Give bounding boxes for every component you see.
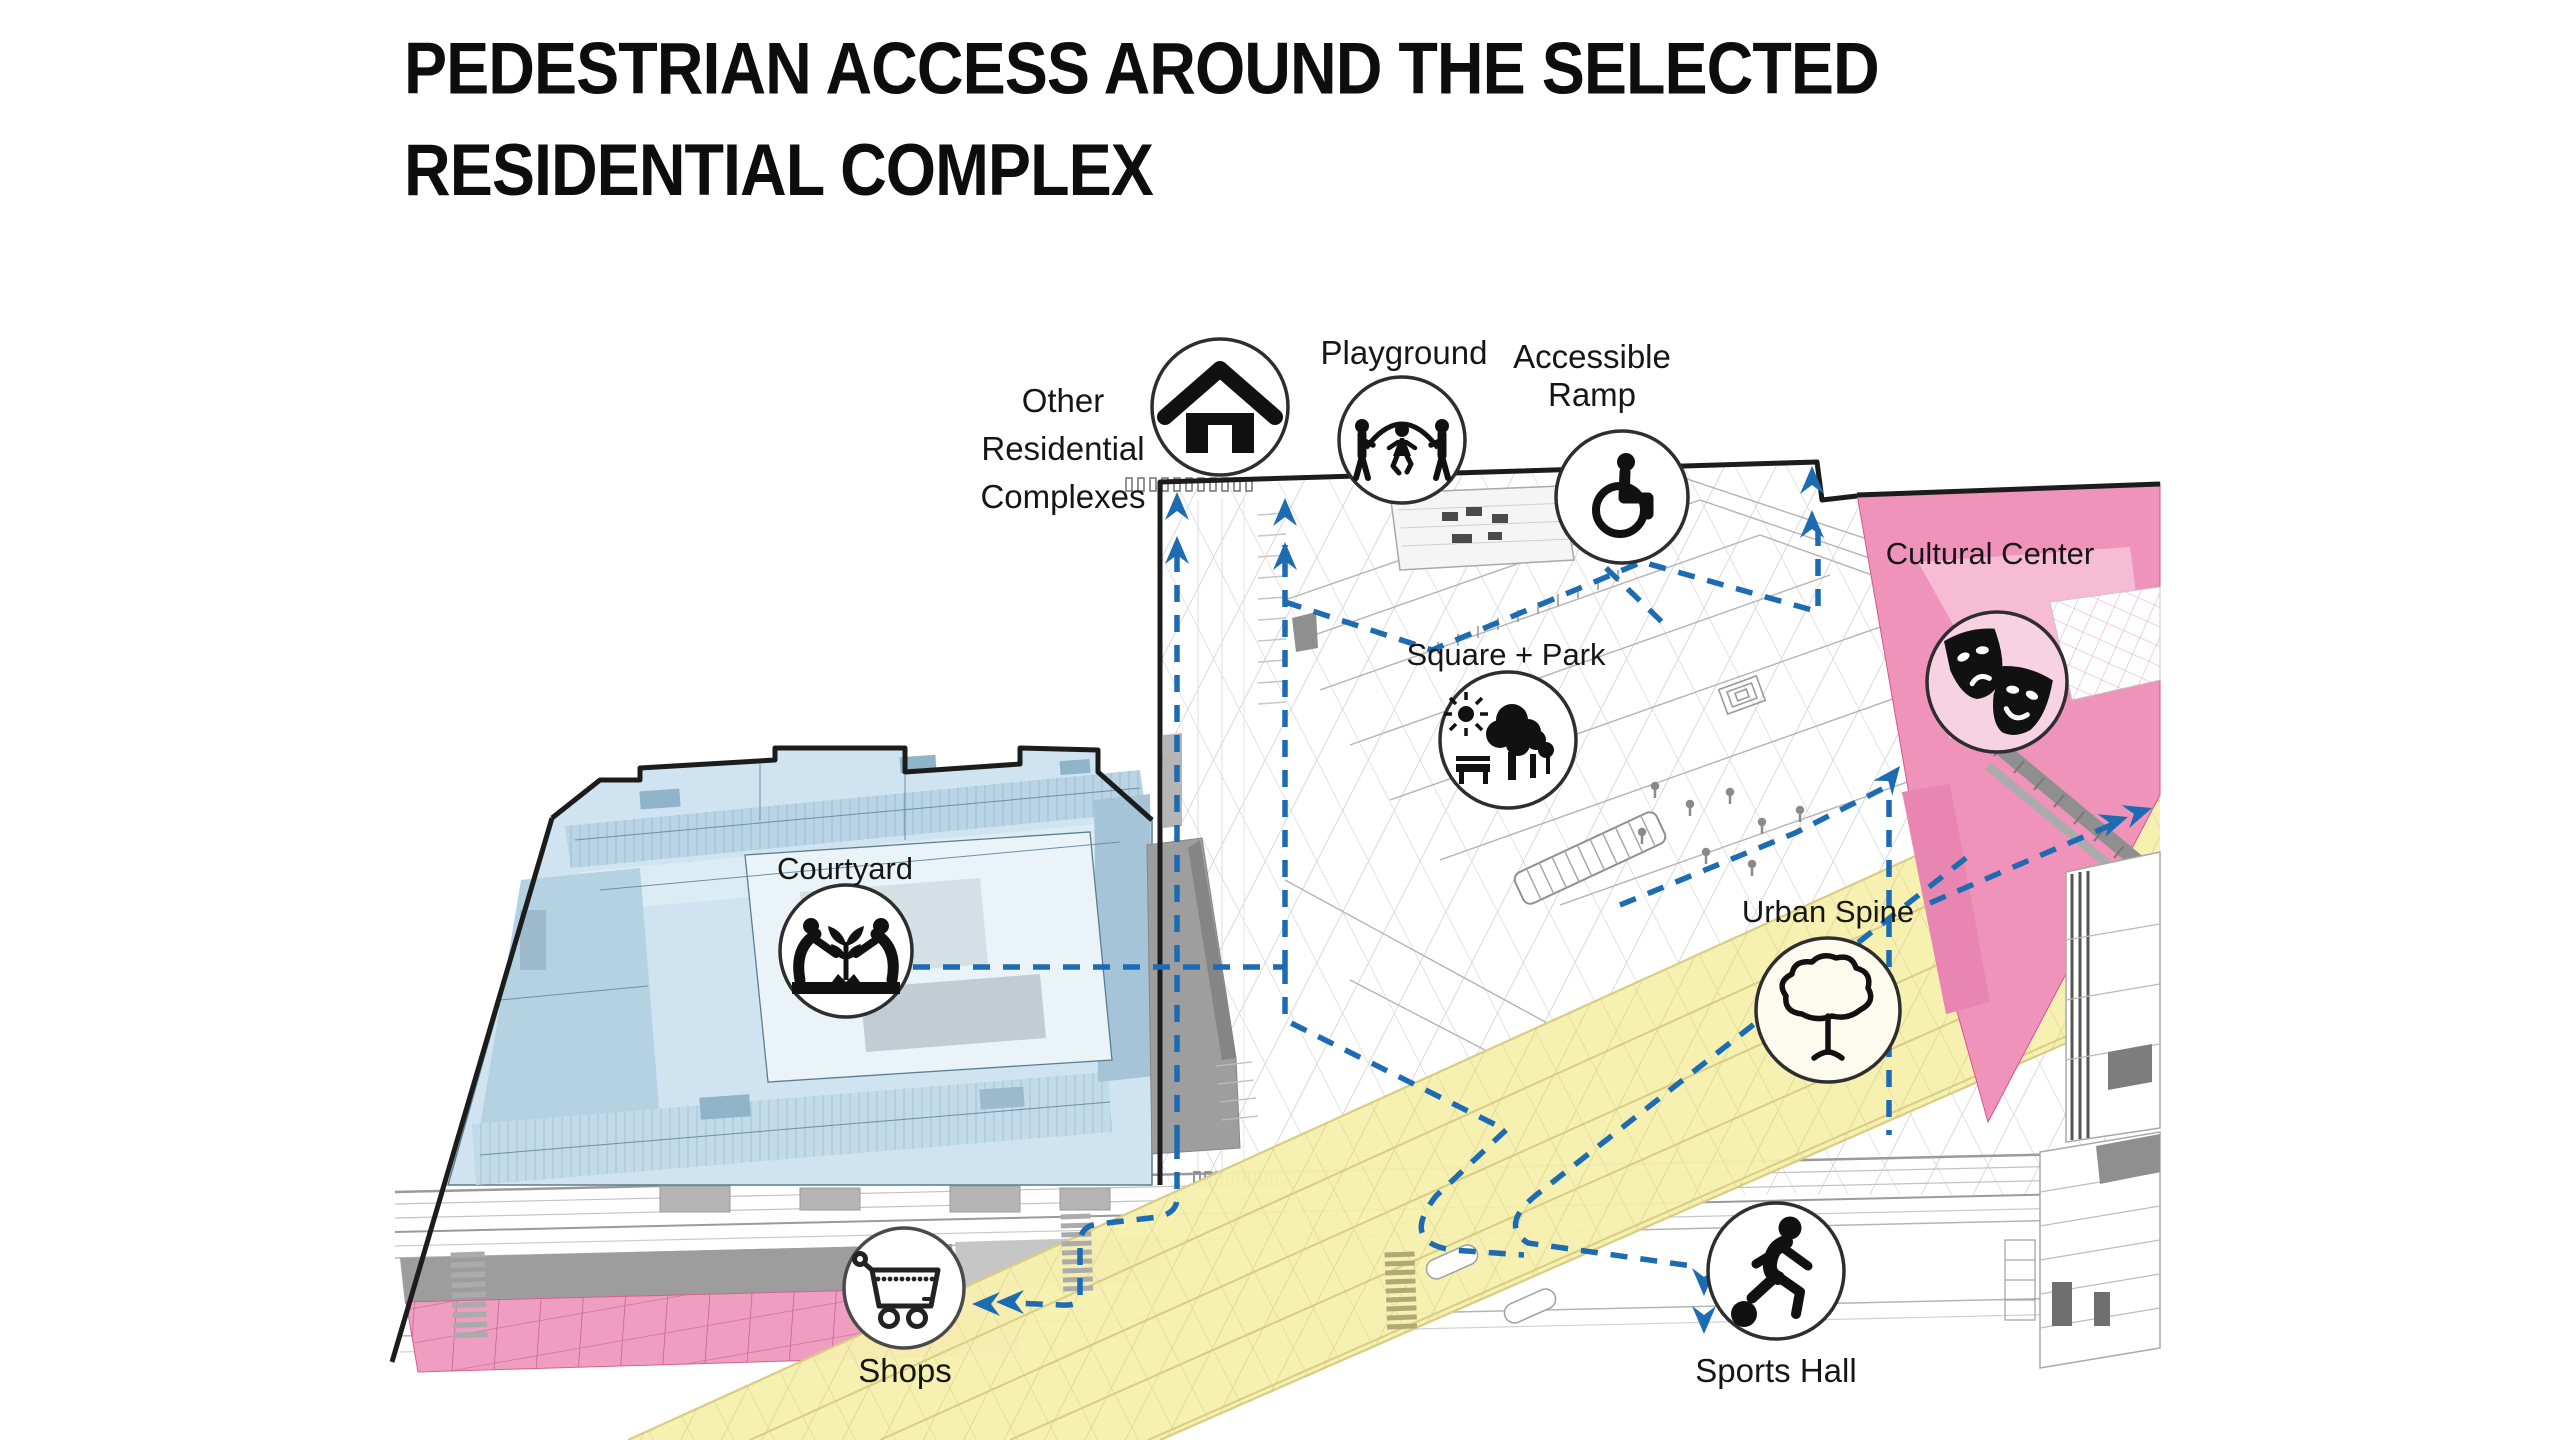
label-urban-spine: Urban Spine <box>1742 894 1914 929</box>
label-accessible-1: Accessible <box>1513 338 1671 375</box>
diagram-canvas: PEDESTRIAN ACCESS AROUND THE SELECTED RE… <box>0 0 2560 1440</box>
annotation-shops <box>844 1228 964 1348</box>
balcony-stack <box>2005 1240 2035 1320</box>
label-other-residential-1: Other <box>1022 382 1105 419</box>
label-courtyard: Courtyard <box>777 851 913 886</box>
annotation-square-park <box>1440 672 1576 808</box>
label-other-residential-2: Residential <box>981 430 1144 467</box>
annotation-cultural-center <box>1927 612 2067 752</box>
annotation-accessible-ramp <box>1556 431 1688 563</box>
label-playground: Playground <box>1321 334 1488 371</box>
annotation-courtyard <box>780 885 912 1017</box>
label-sports-hall: Sports Hall <box>1695 1352 1856 1389</box>
annotation-playground <box>1339 377 1465 503</box>
label-accessible-2: Ramp <box>1548 376 1636 413</box>
label-square-park: Square + Park <box>1406 637 1606 672</box>
label-other-residential-3: Complexes <box>980 478 1145 515</box>
axonometric-map: Other Residential Complexes Playground A… <box>0 0 2560 1440</box>
label-cultural-center: Cultural Center <box>1886 536 2094 571</box>
annotation-house <box>1152 339 1288 475</box>
annotation-sports-hall <box>1708 1203 1844 1339</box>
annotation-urban-spine <box>1756 938 1900 1082</box>
label-shops: Shops <box>858 1352 952 1389</box>
